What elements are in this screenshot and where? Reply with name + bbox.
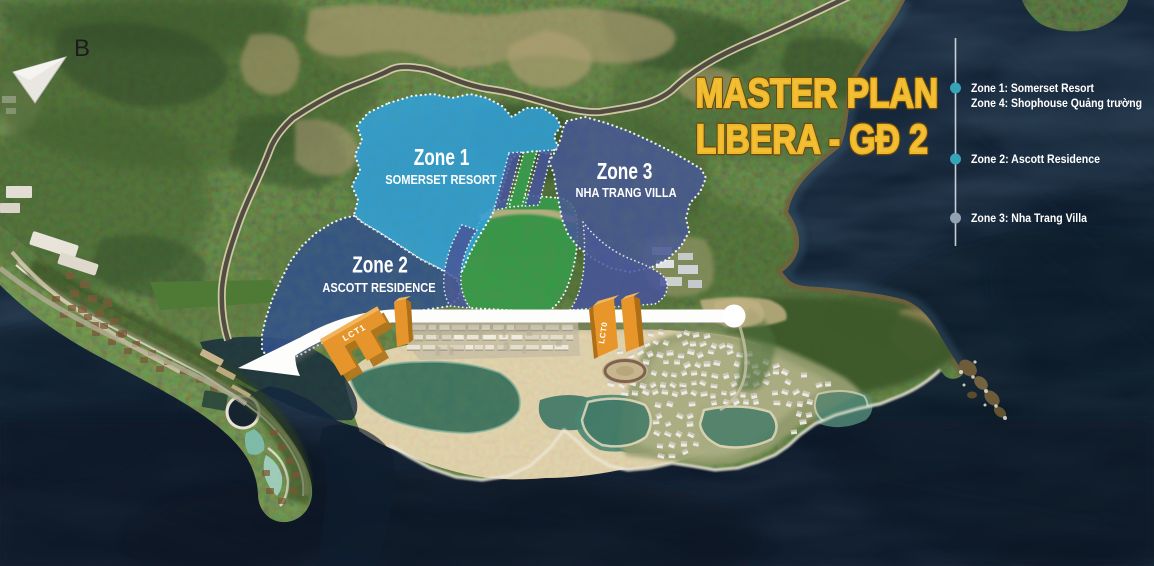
svg-text:Zone 4: Shophouse Quảng trường: Zone 4: Shophouse Quảng trường xyxy=(971,98,1142,110)
svg-text:Zone 3: Zone 3 xyxy=(597,160,653,185)
svg-text:Zone 1: Zone 1 xyxy=(414,146,470,171)
svg-text:Zone 2: Zone 2 xyxy=(352,253,408,278)
svg-text:SOMERSET RESORT: SOMERSET RESORT xyxy=(385,172,497,187)
svg-text:ASCOTT RESIDENCE: ASCOTT RESIDENCE xyxy=(322,280,435,295)
svg-text:LIBERA - GĐ 2: LIBERA - GĐ 2 xyxy=(696,116,928,162)
svg-text:Zone 3: Nha Trang Villa: Zone 3: Nha Trang Villa xyxy=(971,213,1088,225)
svg-text:Zone 2: Ascott Residence: Zone 2: Ascott Residence xyxy=(971,154,1100,166)
svg-text:B: B xyxy=(74,35,90,62)
svg-text:Zone 1: Somerset Resort: Zone 1: Somerset Resort xyxy=(971,83,1094,95)
svg-text:NHA TRANG VILLA: NHA TRANG VILLA xyxy=(575,185,677,200)
svg-text:MASTER PLAN: MASTER PLAN xyxy=(695,70,938,116)
